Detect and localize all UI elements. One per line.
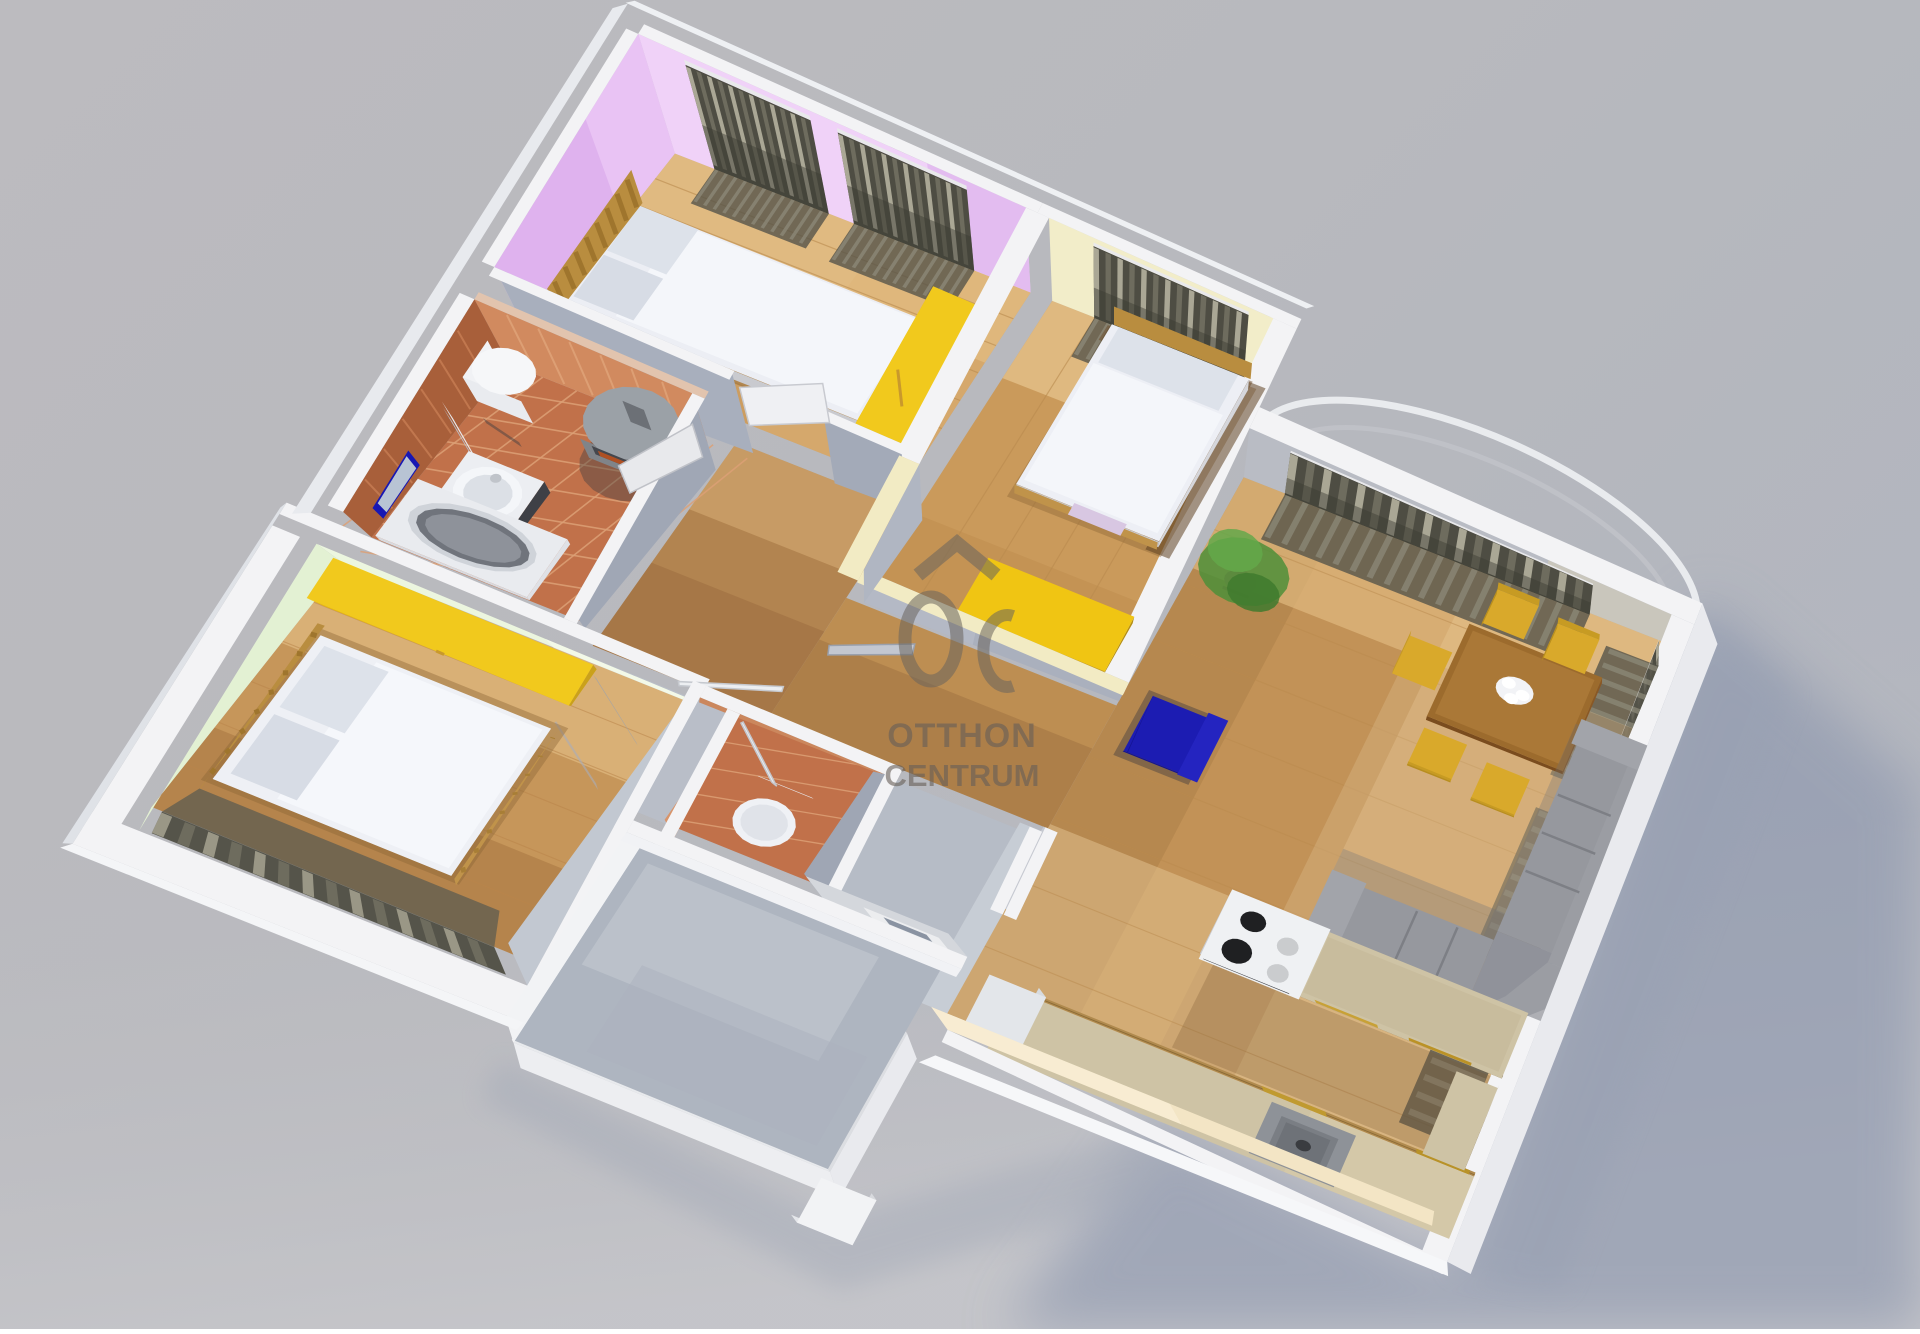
svg-text:OTTHON: OTTHON [887, 717, 1037, 755]
svg-text:CENTRUM: CENTRUM [885, 758, 1040, 793]
